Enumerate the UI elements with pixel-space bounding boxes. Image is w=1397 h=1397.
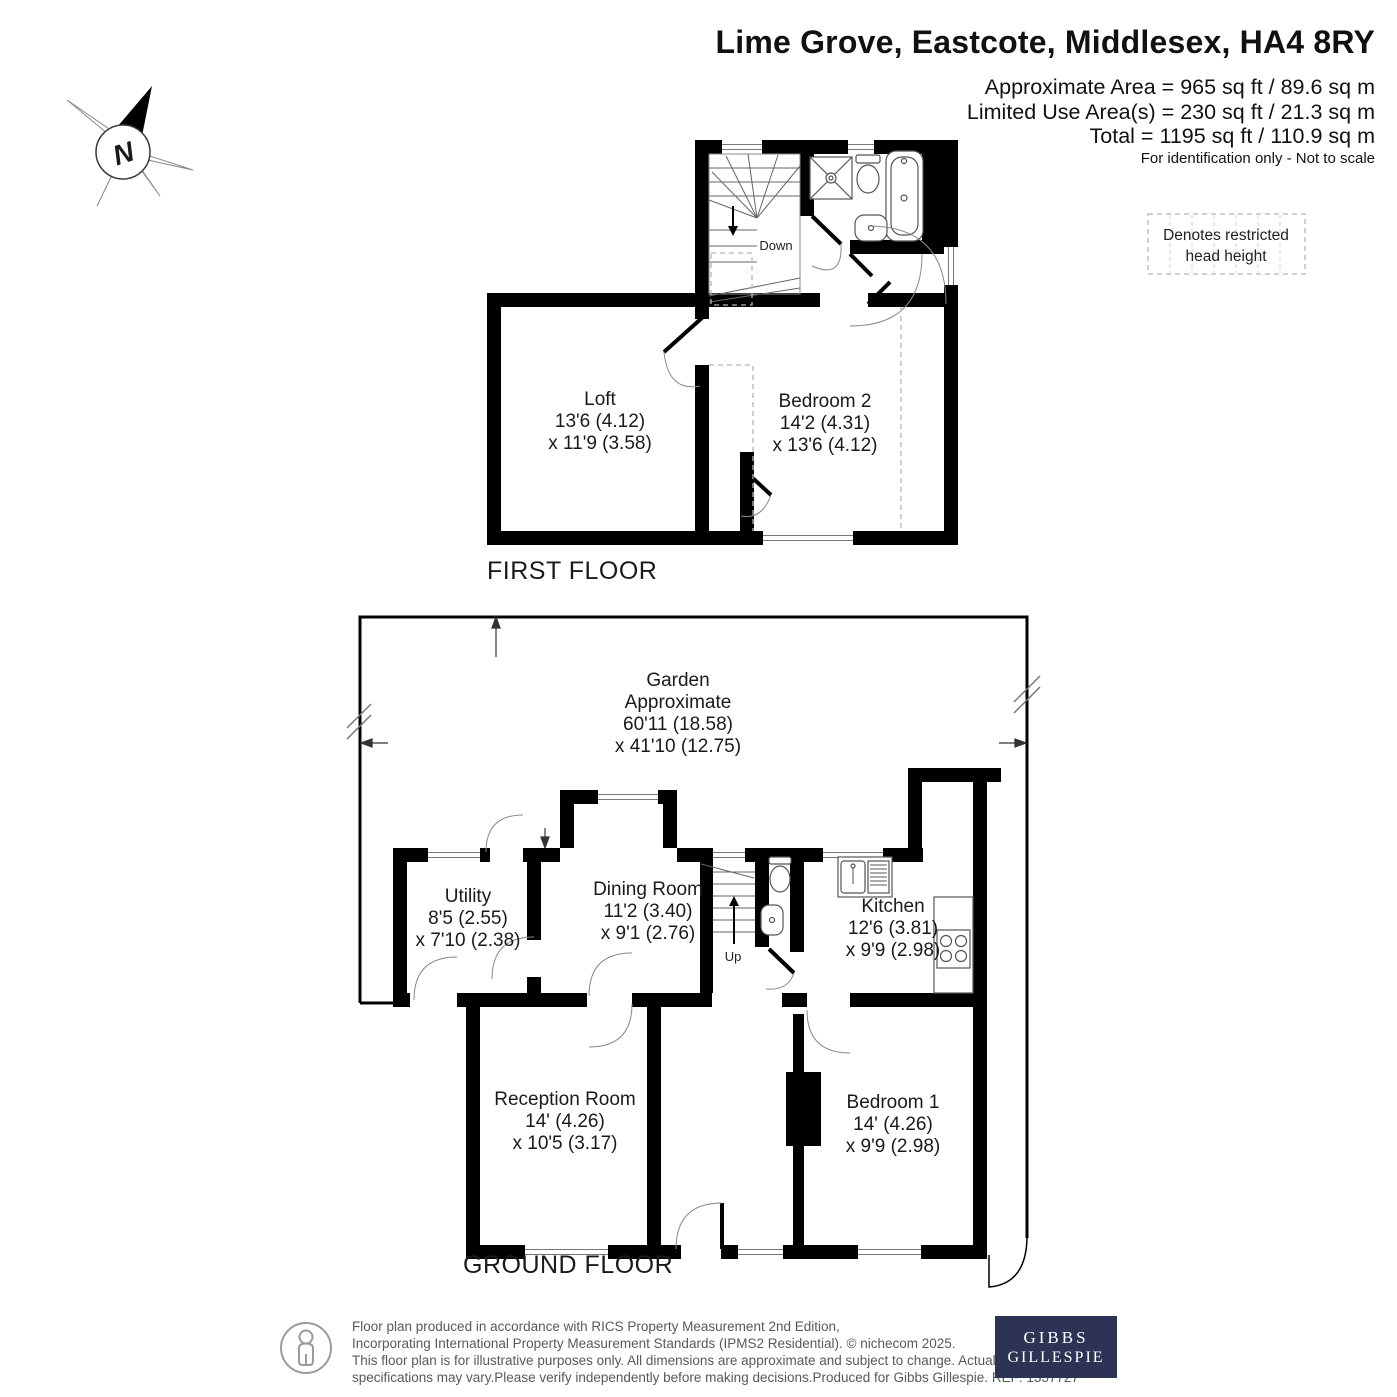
stairs-down-label: Down — [759, 238, 792, 253]
logo-line2: GILLESPIE — [1007, 1349, 1104, 1367]
chimney-breast — [786, 1072, 821, 1146]
dining-dim2: x 9'1 (2.76) — [601, 923, 695, 944]
ground-floor-walls — [393, 768, 1001, 1259]
first-floor-label: FIRST FLOOR — [487, 557, 657, 585]
wc-toilet-icon — [769, 857, 791, 864]
approximate-area: Approximate Area = 965 sq ft / 89.6 sq m — [716, 75, 1375, 100]
bedroom1-dim1: 14' (4.26) — [853, 1114, 933, 1135]
loft-dim1: 13'6 (4.12) — [555, 411, 645, 432]
stairs-up-label: Up — [725, 949, 742, 964]
bedroom2-dim1: 14'2 (4.31) — [780, 413, 870, 434]
bedroom2-name: Bedroom 2 — [779, 391, 872, 412]
stairs-down — [709, 154, 800, 302]
reception-dim1: 14' (4.26) — [525, 1111, 605, 1132]
garden-line2: Approximate — [625, 692, 732, 713]
floorplan-canvas: N Denotes restricted head height — [0, 0, 1397, 1397]
limited-use-area: Limited Use Area(s) = 230 sq ft / 21.3 s… — [716, 100, 1375, 125]
kitchen-name: Kitchen — [861, 896, 924, 917]
restricted-height-legend: Denotes restricted head height — [1148, 214, 1305, 274]
hob-icon — [937, 930, 970, 968]
reception-dim2: x 10'5 (3.17) — [512, 1133, 617, 1154]
kitchen-dim1: 12'6 (3.81) — [848, 918, 938, 939]
bedroom2-dim2: x 13'6 (4.12) — [772, 435, 877, 456]
dining-name: Dining Room — [593, 879, 703, 900]
loft-dim2: x 11'9 (3.58) — [548, 433, 652, 454]
ground-floor-label: GROUND FLOOR — [463, 1251, 673, 1279]
person-scale-icon — [279, 1321, 333, 1375]
dining-dim1: 11'2 (3.40) — [604, 901, 693, 922]
utility-dim2: x 7'10 (2.38) — [415, 930, 520, 951]
legend-line2: head height — [1185, 248, 1267, 265]
scale-disclaimer: For identification only - Not to scale — [716, 149, 1375, 168]
kitchen-dim2: x 9'9 (2.98) — [846, 940, 940, 961]
reception-name: Reception Room — [494, 1089, 636, 1110]
loft-name: Loft — [584, 389, 616, 410]
compass-rose: N — [67, 86, 193, 206]
legend-line1: Denotes restricted — [1163, 227, 1289, 244]
footer: Floor plan produced in accordance with R… — [0, 1310, 1397, 1397]
page-title: Lime Grove, Eastcote, Middlesex, HA4 8RY — [716, 24, 1375, 61]
total-area: Total = 1195 sq ft / 110.9 sq m — [716, 124, 1375, 149]
utility-name: Utility — [445, 886, 492, 907]
first-floor-plan: Down — [487, 140, 958, 585]
gibbs-gillespie-logo: GIBBS GILLESPIE — [995, 1316, 1117, 1378]
garden-dim1: 60'11 (18.58) — [623, 714, 733, 735]
garden-name: Garden — [646, 670, 709, 691]
floorplan-page: N Denotes restricted head height — [0, 0, 1397, 1397]
utility-dim1: 8'5 (2.55) — [428, 908, 508, 929]
logo-line1: GIBBS — [1023, 1328, 1088, 1348]
header: Lime Grove, Eastcote, Middlesex, HA4 8RY… — [716, 24, 1375, 168]
garden-dim2: x 41'10 (12.75) — [615, 736, 741, 757]
ground-floor-plan: Up — [347, 617, 1040, 1287]
bedroom1-name: Bedroom 1 — [847, 1092, 940, 1113]
bedroom1-dim2: x 9'9 (2.98) — [846, 1136, 940, 1157]
